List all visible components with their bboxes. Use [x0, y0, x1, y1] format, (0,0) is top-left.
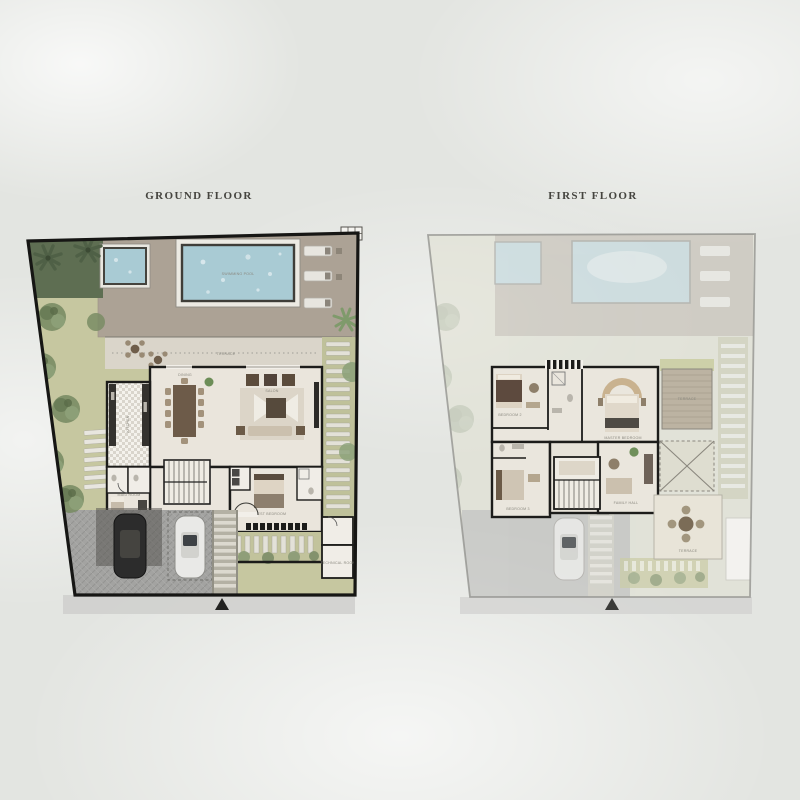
salon-label: SALON: [265, 389, 278, 393]
balcony-railing: [545, 360, 583, 369]
kitchen-label: KITCHEN: [126, 415, 130, 432]
ground-floor-plan: GROUND FLOOR: [8, 184, 390, 614]
car-white-faded: [554, 518, 584, 580]
upper-terrace: TERRACE: [660, 359, 714, 429]
swimming-pool: SWIMMING POOL: [176, 239, 300, 307]
pergola-open: [660, 441, 714, 491]
hedge-strip: [620, 558, 708, 588]
terrace-label: TERRACE: [217, 352, 236, 356]
terrace: TERRACE: [105, 337, 352, 369]
ground-floor-drawing: SWIMMING POOL: [8, 202, 390, 616]
bedroom-3-label: BEDROOM 3: [506, 507, 529, 511]
brochure-page: { "page": { "background_color": "#e3e5e1…: [0, 0, 800, 800]
ground-floor-title: GROUND FLOOR: [8, 190, 390, 202]
dining-label: DINING: [178, 373, 192, 377]
technical-room: TECHNICAL ROOM: [320, 517, 355, 578]
driveway: [63, 508, 235, 595]
staircase-first: [554, 457, 600, 509]
street-faded: [460, 597, 752, 614]
lower-terrace-label: TERRACE: [679, 549, 698, 553]
maid-room-label: MAID ROOM: [118, 493, 141, 497]
car-dark: [114, 514, 146, 578]
plunge-pool: [100, 244, 150, 288]
pool-label: SWIMMING POOL: [222, 272, 255, 276]
entrance-garden: [230, 532, 322, 564]
trellis-walkway: [212, 510, 238, 595]
master-bedroom-label: MASTER BEDROOM: [604, 436, 641, 440]
staircase: [164, 460, 210, 504]
bedroom-2-label: BEDROOM 2: [498, 413, 521, 417]
side-pad: [726, 518, 752, 580]
first-floor-title: FIRST FLOOR: [402, 190, 784, 202]
car-white: [175, 516, 205, 578]
powder-room: [107, 467, 150, 493]
first-floor-plan: FIRST FLOOR: [402, 184, 784, 614]
first-floor-drawing: BEDROOM 2 MASTER BEDROOM: [402, 202, 784, 616]
indoor-plant: [205, 378, 214, 387]
technical-room-label: TECHNICAL ROOM: [320, 561, 355, 565]
street: [63, 595, 355, 614]
upper-terrace-label: TERRACE: [678, 397, 697, 401]
family-hall-label: FAMILY HALL: [614, 501, 639, 505]
lower-terrace: TERRACE: [654, 495, 722, 559]
